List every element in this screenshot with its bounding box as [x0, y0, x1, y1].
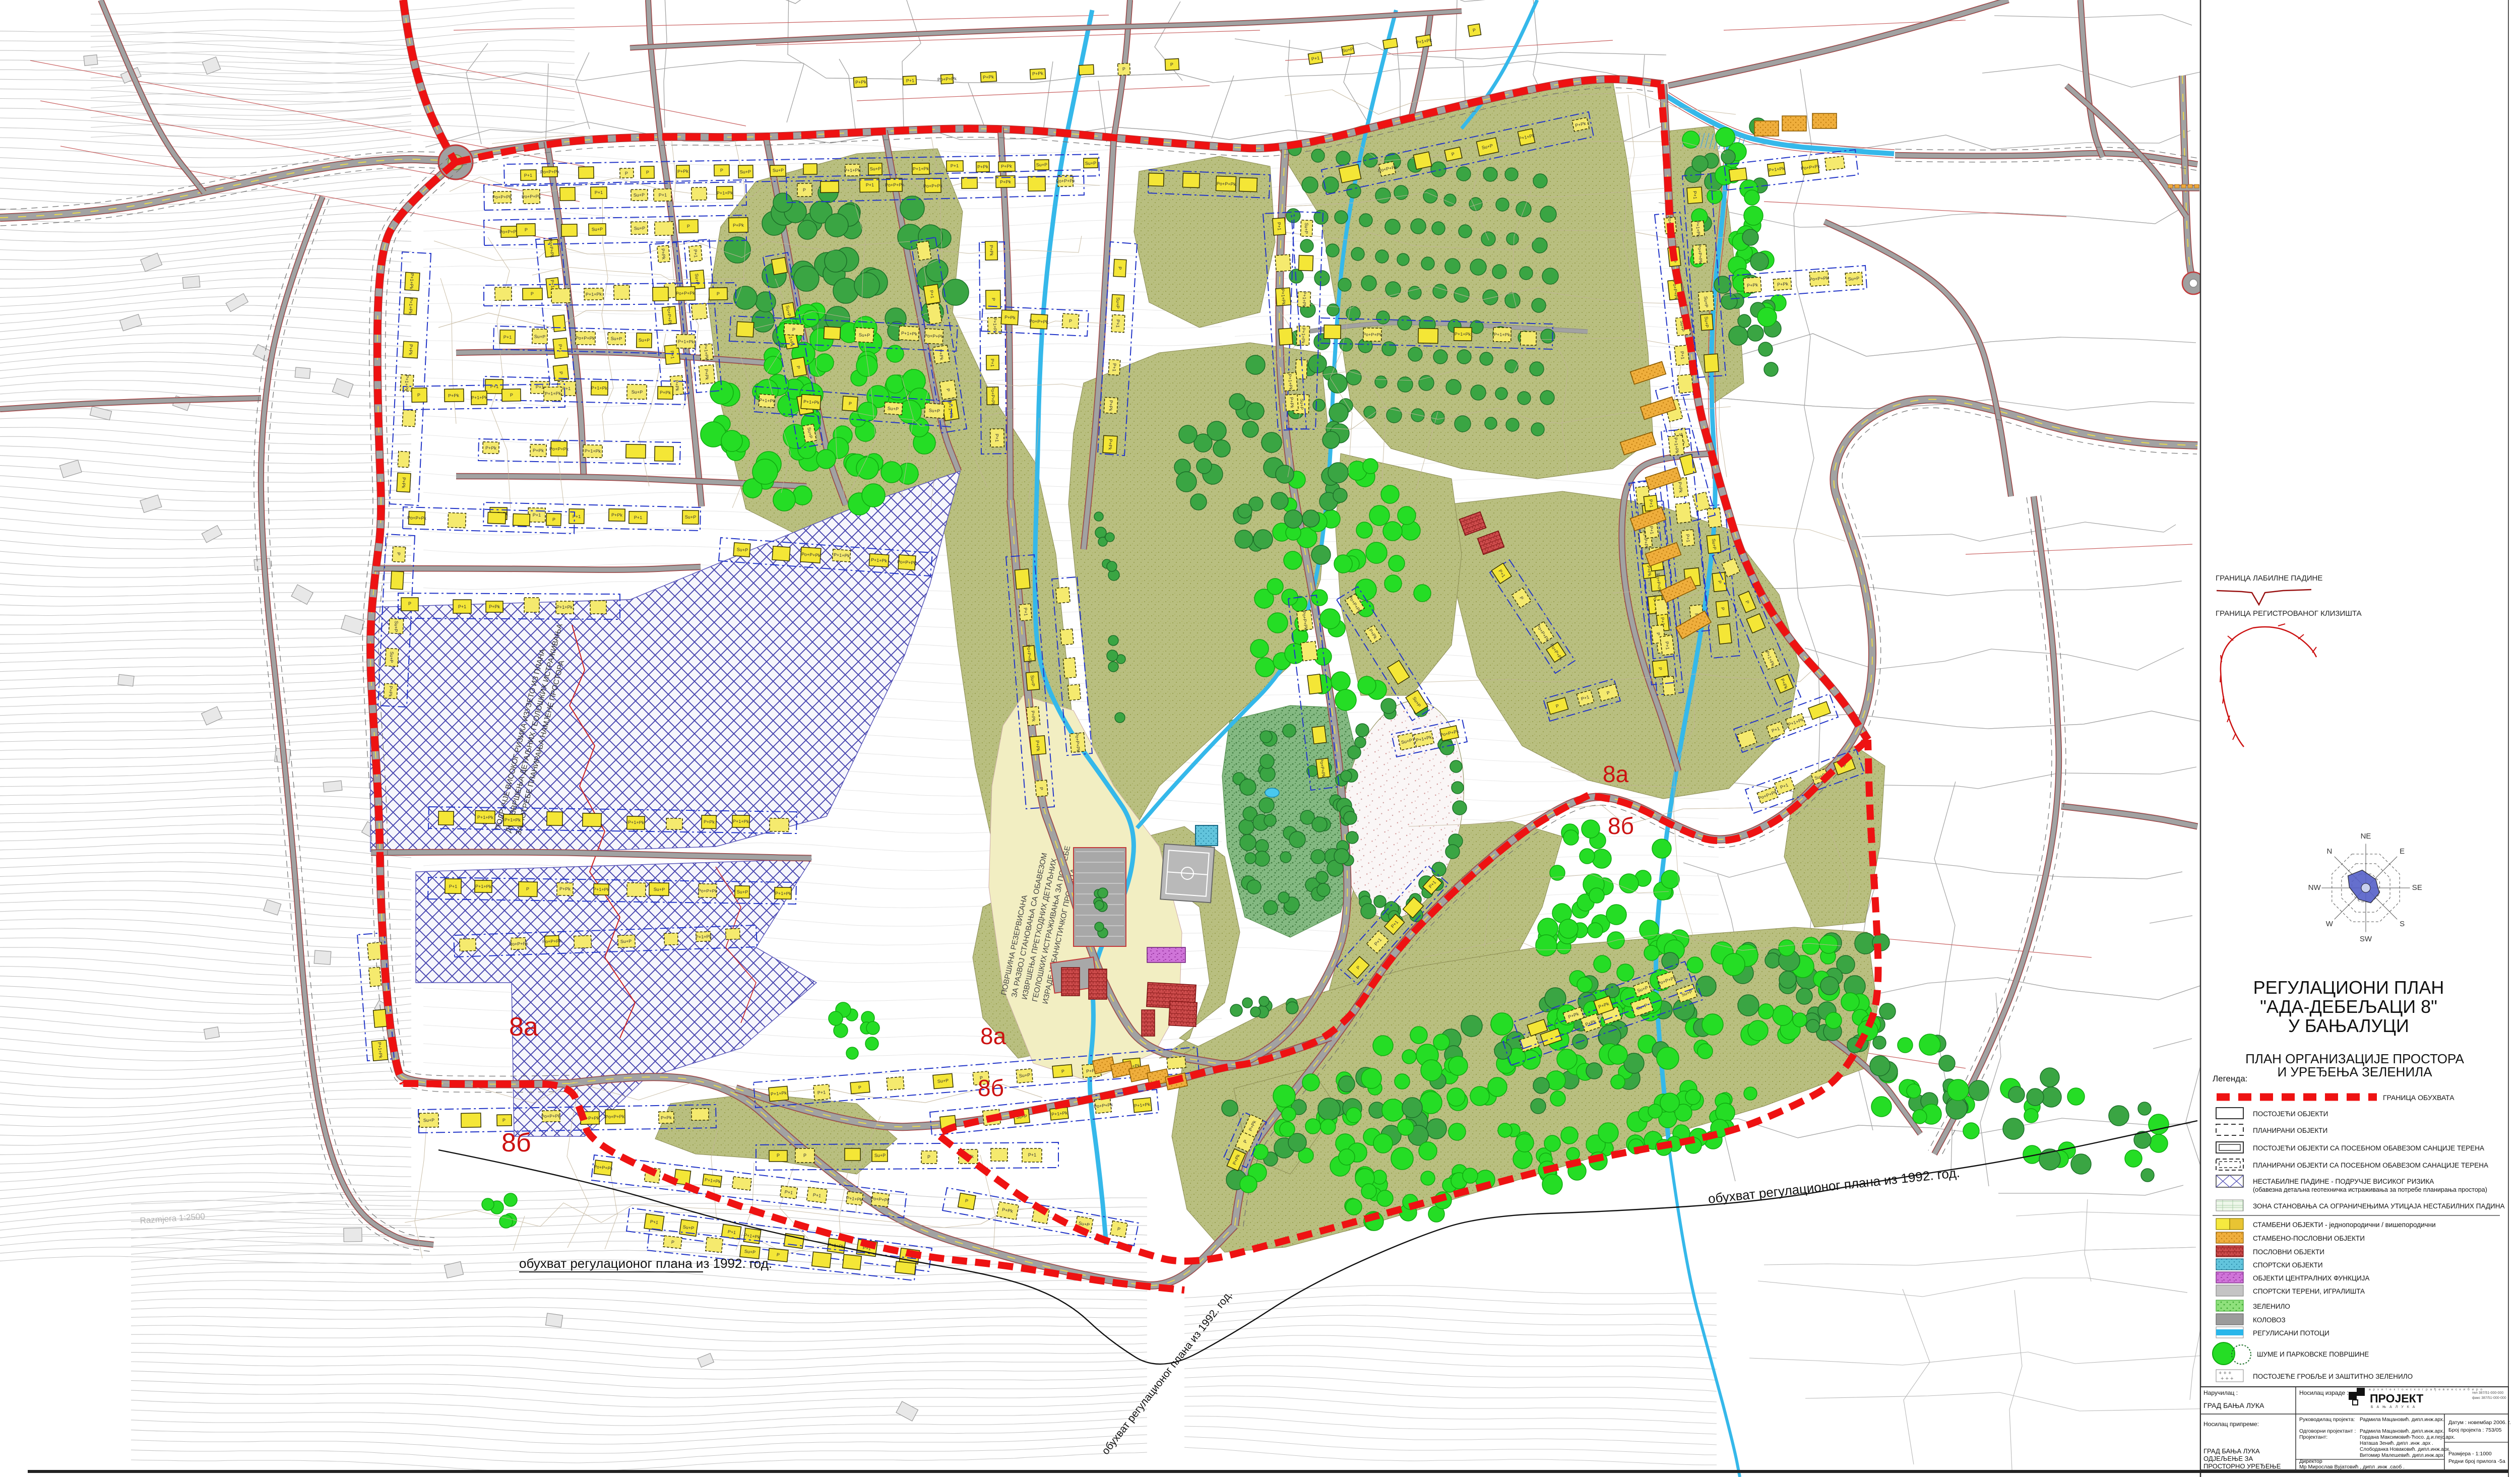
svg-text:Po+P+Pk: Po+P+Pk: [1217, 181, 1236, 186]
svg-text:ОДЈЕЉЕЊЕ ЗА: ОДЈЕЉЕЊЕ ЗА: [2203, 1455, 2253, 1462]
svg-text:P+Pk: P+Pk: [1032, 71, 1044, 76]
svg-text:Su+P: Su+P: [423, 1118, 434, 1123]
svg-text:Пројектант:: Пројектант:: [2299, 1434, 2327, 1440]
svg-text:P+Pk: P+Pk: [559, 886, 571, 891]
svg-text:P+1+Pk: P+1+Pk: [585, 448, 601, 454]
svg-text:P+1+Pk: P+1+Pk: [717, 190, 733, 196]
svg-text:P+1: P+1: [692, 249, 698, 258]
svg-text:8а: 8а: [509, 1012, 538, 1042]
svg-text:Носилац израде :: Носилац израде :: [2299, 1389, 2349, 1396]
svg-text:P+1+Pk: P+1+Pk: [628, 820, 645, 825]
svg-text:НЕСТАБИЛНЕ ПАДИНЕ - ПОДРУЧЈЕ В: НЕСТАБИЛНЕ ПАДИНЕ - ПОДРУЧЈЕ ВИСИКОГ РИЗ…: [2253, 1178, 2434, 1185]
svg-text:P: P: [417, 393, 420, 398]
svg-text:P+1+Pk: P+1+Pk: [1455, 332, 1471, 337]
svg-text:P: P: [1170, 62, 1174, 67]
svg-text:Гордана Максимовић-Ћосо. д.и.п: Гордана Максимовић-Ћосо. д.и.пејс.арх.: [2360, 1435, 2455, 1440]
svg-text:P: P: [646, 170, 649, 175]
svg-text:"АДА-ДЕБЕЉАЦИ 8": "АДА-ДЕБЕЉАЦИ 8": [2260, 996, 2437, 1017]
svg-text:ШУМЕ И ПАРКОВСКЕ ПОВРШИНЕ: ШУМЕ И ПАРКОВСКЕ ПОВРШИНЕ: [2257, 1351, 2369, 1358]
svg-text:NE: NE: [2361, 832, 2371, 841]
svg-text:Su+P: Su+P: [937, 1078, 949, 1084]
svg-text:Su+P: Su+P: [1019, 1072, 1030, 1078]
svg-text:Мр Мирослав Вујатовић , дипл: Мр Мирослав Вујатовић , дипл .инж .саоб …: [2299, 1464, 2405, 1470]
svg-text:ПОСТОЈЕЋЕ ГРОБЉЕ И ЗАШТИТНО ЗЕ: ПОСТОЈЕЋЕ ГРОБЉЕ И ЗАШТИТНО ЗЕЛЕНИЛО: [2253, 1373, 2413, 1380]
svg-text:P+1: P+1: [634, 515, 642, 520]
svg-text:SE: SE: [2412, 883, 2422, 892]
svg-text:а р х и т е к т о н с к о г р: а р х и т е к т о н с к о г р а ђ е в и …: [2369, 1387, 2483, 1391]
svg-text:P+Pk: P+Pk: [677, 169, 688, 174]
svg-text:Su+P: Su+P: [389, 652, 394, 663]
svg-text:обухват регулационог плана из: обухват регулационог плана из 1992. год.: [519, 1256, 772, 1271]
svg-text:ГРАД БАЊА ЛУКА: ГРАД БАЊА ЛУКА: [2203, 1447, 2260, 1455]
svg-text:P+Pk: P+Pk: [1289, 397, 1295, 409]
svg-text:P+Pk: P+Pk: [401, 477, 406, 489]
svg-text:Su+P: Su+P: [740, 169, 751, 174]
svg-text:P+1+Pk: P+1+Pk: [593, 887, 610, 892]
svg-text:P+Pk: P+Pk: [1000, 179, 1011, 184]
svg-text:P+1: P+1: [524, 173, 532, 178]
svg-text:P: P: [717, 291, 720, 296]
svg-text:E: E: [2400, 847, 2405, 856]
svg-text:P: P: [927, 1154, 930, 1160]
svg-text:P+Pk: P+Pk: [1108, 400, 1113, 412]
svg-text:Po+P+Pk: Po+P+Pk: [540, 169, 560, 175]
svg-text:P+1+Pk: P+1+Pk: [591, 386, 608, 391]
svg-text:P+1: P+1: [990, 359, 995, 367]
svg-text:P+Pk: P+Pk: [388, 686, 393, 697]
svg-text:P+Pk: P+Pk: [660, 248, 666, 260]
svg-text:СТАМБЕНО-ПОСЛОВНИ ОБЈЕКТИ: СТАМБЕНО-ПОСЛОВНИ ОБЈЕКТИ: [2253, 1235, 2365, 1242]
svg-text:P: P: [510, 393, 513, 398]
svg-text:P+Pk: P+Pk: [733, 223, 744, 228]
svg-text:РЕГУЛИСАНИ ПОТОЦИ: РЕГУЛИСАНИ ПОТОЦИ: [2253, 1329, 2329, 1337]
svg-text:факс 387/51-000-000: факс 387/51-000-000: [2472, 1396, 2506, 1400]
svg-text:И УРЕЂЕЊА ЗЕЛЕНИЛА: И УРЕЂЕЊА ЗЕЛЕНИЛА: [2277, 1064, 2432, 1079]
svg-text:Носилац припреме:: Носилац припреме:: [2203, 1421, 2259, 1428]
svg-text:P+1: P+1: [812, 1192, 821, 1198]
svg-text:тел 387/51-000-000: тел 387/51-000-000: [2472, 1391, 2503, 1395]
svg-text:P+Pk: P+Pk: [408, 344, 413, 356]
svg-text:P+1: P+1: [458, 604, 466, 609]
svg-text:P: P: [1658, 667, 1663, 670]
svg-text:Su+P: Su+P: [888, 406, 899, 412]
svg-text:P+1: P+1: [503, 335, 512, 340]
svg-text:Su+P: Su+P: [592, 227, 603, 232]
svg-text:Po+P+Pk: Po+P+Pk: [676, 291, 696, 296]
svg-text:P+1: P+1: [659, 192, 667, 198]
svg-text:Su+P: Su+P: [654, 887, 665, 892]
svg-text:ЗОНА СТАНОВАЊА СА ОГРАНИЧЕЊИМ: ЗОНА СТАНОВАЊА СА ОГРАНИЧЕЊИМА УТИЦАЈА Н…: [2253, 1202, 2505, 1210]
svg-text:S: S: [2400, 920, 2405, 928]
svg-text:P+Pk: P+Pk: [661, 1115, 672, 1120]
svg-text:Su+P: Su+P: [870, 166, 881, 171]
svg-text:Su+P: Su+P: [685, 515, 696, 520]
svg-text:ПОСТОЈЕЋИ ОБЈЕКТИ СА ПОСЕБНОМ: ПОСТОЈЕЋИ ОБЈЕКТИ СА ПОСЕБНОМ ОБАВЕЗОМ С…: [2253, 1144, 2484, 1152]
svg-text:P+1+Pk: P+1+Pk: [475, 884, 492, 889]
svg-text:P+1+Pk: P+1+Pk: [586, 292, 602, 297]
svg-text:Su+P: Su+P: [611, 336, 622, 341]
svg-text:P+1+Pk: P+1+Pk: [404, 375, 410, 392]
svg-text:Su+P: Su+P: [1704, 316, 1710, 328]
svg-text:Po+P+Pk: Po+P+Pk: [522, 194, 541, 200]
svg-text:P+1: P+1: [1648, 499, 1654, 507]
svg-text:Su+P: Su+P: [1030, 675, 1036, 686]
svg-text:P+1: P+1: [573, 514, 581, 519]
svg-text:8а: 8а: [980, 1023, 1006, 1049]
svg-text:P+1+Pk: P+1+Pk: [775, 891, 792, 896]
svg-text:P: P: [687, 224, 690, 229]
svg-text:Su+P: Su+P: [874, 1153, 886, 1158]
svg-text:P: P: [526, 886, 529, 891]
svg-text:P: P: [531, 291, 534, 296]
svg-text:P: P: [502, 1118, 506, 1123]
svg-text:ГРАД БАЊА ЛУКА: ГРАД БАЊА ЛУКА: [2203, 1401, 2264, 1409]
svg-text:Легенда:: Легенда:: [2213, 1074, 2247, 1083]
svg-text:P+Pk: P+Pk: [855, 79, 867, 85]
svg-text:P+Pk: P+Pk: [533, 448, 544, 453]
svg-text:P+Pk: P+Pk: [1747, 282, 1758, 288]
svg-text:Su+P: Su+P: [737, 547, 748, 553]
svg-text:Витомир Малешевић. дипл.инж.ар: Витомир Малешевић. дипл.инж.арх.: [2360, 1453, 2445, 1458]
svg-text:Наташа Зенић. дипл .инж .арх: Наташа Зенић. дипл .инж .арх .: [2360, 1441, 2433, 1446]
svg-text:Радмила Мацановић. дипл.инж.а: Радмила Мацановић. дипл.инж.арх.: [2360, 1429, 2444, 1434]
svg-text:P: P: [777, 1153, 780, 1158]
svg-text:P: P: [1122, 67, 1126, 72]
svg-text:P+1: P+1: [669, 350, 675, 359]
svg-text:P+1+Pk: P+1+Pk: [913, 166, 929, 172]
svg-text:P+1+Pk: P+1+Pk: [505, 817, 521, 823]
svg-text:N: N: [2326, 847, 2332, 856]
svg-text:P: P: [991, 298, 996, 301]
svg-text:Po+P+Pk: Po+P+Pk: [937, 76, 957, 82]
svg-text:Su+P: Su+P: [1703, 296, 1709, 308]
svg-text:P+Pk: P+Pk: [1777, 281, 1789, 287]
svg-text:СПОРТСКИ ТЕРЕНИ, ИГРАЛИШТА: СПОРТСКИ ТЕРЕНИ, ИГРАЛИШТА: [2253, 1288, 2365, 1295]
svg-text:Po+P+Pk: Po+P+Pk: [549, 446, 569, 452]
svg-text:Датум : новембар 2006. г.: Датум : новембар 2006. г.: [2448, 1420, 2511, 1426]
svg-text:Po+P+Pk: Po+P+Pk: [541, 1114, 561, 1119]
svg-text:Po+P+Pk: Po+P+Pk: [605, 1114, 625, 1120]
svg-text:P+1: P+1: [951, 163, 959, 168]
svg-text:P: P: [396, 552, 401, 556]
svg-text:P+1: P+1: [1649, 526, 1655, 534]
svg-text:P+Pk: P+Pk: [1107, 439, 1113, 451]
svg-text:P+1: P+1: [1664, 641, 1670, 650]
svg-text:P+1+Pk: P+1+Pk: [471, 395, 488, 401]
svg-text:Po+P+Pk: Po+P+Pk: [885, 182, 905, 188]
svg-text:Su+P: Su+P: [639, 338, 650, 343]
svg-text:P+1+Pk: P+1+Pk: [477, 815, 494, 820]
svg-text:Одговорни пројектант :: Одговорни пројектант :: [2299, 1428, 2356, 1434]
svg-text:Број пројекта : 753/05: Број пројекта : 753/05: [2448, 1427, 2502, 1433]
svg-text:P+1+Pk: P+1+Pk: [409, 273, 415, 290]
svg-text:ПОСТОЈЕЋИ ОБЈЕКТИ: ПОСТОЈЕЋИ ОБЈЕКТИ: [2253, 1110, 2328, 1118]
svg-text:P+1: P+1: [1679, 351, 1685, 359]
svg-text:Su+P: Su+P: [620, 939, 632, 944]
svg-text:P+1: P+1: [1276, 222, 1282, 231]
svg-text:P: P: [1720, 607, 1726, 610]
svg-text:Su+P: Su+P: [1848, 276, 1860, 282]
svg-text:W: W: [2326, 920, 2334, 928]
svg-text:P+1: P+1: [1112, 363, 1117, 372]
svg-text:P: P: [776, 1252, 780, 1258]
svg-text:P+1+Pk: P+1+Pk: [844, 168, 861, 173]
svg-text:Слободанка Новаковић. дипл.инж: Слободанка Новаковић. дипл.инж.арх.: [2360, 1446, 2450, 1452]
svg-text:ГРАНИЦА ЛАБИЛНЕ ПАДИНЕ: ГРАНИЦА ЛАБИЛНЕ ПАДИНЕ: [2216, 574, 2322, 583]
svg-text:P+1+Pk: P+1+Pk: [901, 331, 918, 337]
svg-text:Руководилац пројекта:: Руководилац пројекта:: [2299, 1417, 2355, 1423]
svg-text:У БАЊАЛУЦИ: У БАЊАЛУЦИ: [2288, 1015, 2409, 1036]
svg-text:ПРОЈЕКТ: ПРОЈЕКТ: [2370, 1392, 2423, 1405]
svg-text:P+1: P+1: [866, 182, 874, 187]
svg-text:P+1+Pk: P+1+Pk: [1300, 328, 1306, 344]
svg-text:P: P: [525, 227, 528, 232]
svg-text:P+Pk: P+Pk: [611, 512, 622, 518]
svg-text:8б: 8б: [978, 1075, 1004, 1101]
svg-text:8а: 8а: [1603, 761, 1629, 787]
svg-text:Su+P: Su+P: [737, 889, 748, 894]
svg-text:P: P: [792, 327, 796, 332]
svg-text:СПОРТСКИ ОБЈЕКТИ: СПОРТСКИ ОБЈЕКТИ: [2253, 1261, 2323, 1269]
svg-text:P: P: [803, 187, 806, 192]
svg-text:Su+P: Su+P: [393, 621, 399, 632]
svg-text:P: P: [625, 171, 628, 176]
svg-text:Su+P: Su+P: [1085, 161, 1096, 166]
svg-text:Po+P+Pk: Po+P+Pk: [407, 515, 427, 521]
svg-text:P+1: P+1: [817, 1089, 826, 1095]
svg-text:P+1: P+1: [994, 434, 999, 442]
svg-text:Su+P: Su+P: [1304, 223, 1309, 234]
svg-text:P+1+Pk: P+1+Pk: [408, 298, 414, 314]
svg-text:P+1: P+1: [562, 386, 571, 391]
svg-text:P+1+Pk: P+1+Pk: [696, 934, 712, 939]
svg-text:Su+P: Su+P: [634, 192, 645, 198]
svg-text:Po+P+Pk: Po+P+Pk: [924, 333, 944, 339]
svg-text:P+1: P+1: [1685, 534, 1691, 542]
svg-text:Po+P+Pk: Po+P+Pk: [698, 888, 718, 894]
svg-text:РЕГУЛАЦИОНИ ПЛАН: РЕГУЛАЦИОНИ ПЛАН: [2253, 977, 2444, 998]
svg-text:P: P: [1117, 267, 1122, 270]
svg-text:ПЛАНИРАНИ ОБЈЕКТИ СА ПОСЕБНОМ: ПЛАНИРАНИ ОБЈЕКТИ СА ПОСЕБНОМ ОБАВЕЗОМ С…: [2253, 1162, 2488, 1169]
svg-text:P+1: P+1: [906, 78, 915, 84]
svg-text:P+1: P+1: [784, 1189, 793, 1195]
svg-text:P+Pk: P+Pk: [1001, 164, 1012, 169]
svg-text:P: P: [671, 1240, 674, 1245]
svg-text:ПЛАНИРАНИ ОБЈЕКТИ: ПЛАНИРАНИ ОБЈЕКТИ: [2253, 1127, 2327, 1134]
svg-text:P+1: P+1: [595, 190, 603, 195]
svg-text:Б А Њ А Л У К А: Б А Њ А Л У К А: [2371, 1405, 2416, 1409]
svg-text:Размјера - 1:1000: Размјера - 1:1000: [2448, 1451, 2492, 1457]
svg-text:Su+P: Su+P: [634, 226, 645, 231]
svg-text:ПРОСТОРНО УРЕЂЕЊЕ: ПРОСТОРНО УРЕЂЕЊЕ: [2203, 1462, 2281, 1470]
svg-text:SW: SW: [2360, 935, 2372, 943]
svg-text:ГРАНИЦА ОБУХВАТА: ГРАНИЦА ОБУХВАТА: [2383, 1094, 2454, 1102]
svg-text:P+1+Pk: P+1+Pk: [1494, 332, 1510, 338]
svg-text:Наручилац :: Наручилац :: [2203, 1389, 2238, 1396]
svg-text:P+1+Pk: P+1+Pk: [556, 605, 573, 610]
svg-text:КОЛОВОЗ: КОЛОВОЗ: [2253, 1316, 2286, 1324]
svg-text:P+1: P+1: [1028, 1152, 1036, 1158]
svg-text:P: P: [552, 517, 555, 522]
svg-text:P: P: [408, 601, 411, 606]
svg-text:P: P: [1061, 1069, 1065, 1074]
svg-text:P: P: [1717, 580, 1723, 584]
svg-text:P+1: P+1: [533, 512, 541, 518]
svg-text:ОБЈЕКТИ ЦЕНТРАЛНИХ ФУНКЦИЈА: ОБЈЕКТИ ЦЕНТРАЛНИХ ФУНКЦИЈА: [2253, 1274, 2369, 1282]
svg-text:P+Pk: P+Pk: [989, 245, 994, 256]
svg-text:P+Pk: P+Pk: [448, 393, 459, 398]
svg-text:P+Pk: P+Pk: [704, 819, 715, 824]
svg-text:P+1: P+1: [1023, 607, 1028, 616]
svg-text:P: P: [1039, 787, 1044, 791]
svg-text:8б: 8б: [1608, 813, 1634, 839]
svg-text:P+1: P+1: [1692, 191, 1697, 200]
svg-text:Su+P: Su+P: [1299, 399, 1305, 410]
svg-text:(обавезна детаљна геотехничка: (обавезна детаљна геотехничка истраживањ…: [2253, 1186, 2487, 1193]
svg-text:P: P: [858, 1085, 862, 1090]
svg-text:Po+P+Pk: Po+P+Pk: [923, 183, 943, 189]
svg-text:Po+P+Pk: Po+P+Pk: [542, 938, 562, 944]
svg-text:Po+P+Pk: Po+P+Pk: [492, 195, 512, 200]
svg-text:P+Pk: P+Pk: [1035, 740, 1041, 752]
svg-text:Радмила Мацановић. дипл.инж.а: Радмила Мацановић. дипл.инж.арх.: [2360, 1417, 2444, 1423]
svg-text:Po+P+Pk: Po+P+Pk: [1056, 178, 1076, 184]
svg-text:ЗЕЛЕНИЛО: ЗЕЛЕНИЛО: [2253, 1303, 2290, 1310]
svg-text:Su+P: Su+P: [534, 334, 545, 339]
svg-text:ПОСЛОВНИ ОБЈЕКТИ: ПОСЛОВНИ ОБЈЕКТИ: [2253, 1248, 2324, 1256]
svg-text:P: P: [1069, 318, 1073, 324]
svg-text:P+1: P+1: [1115, 319, 1121, 328]
svg-text:P+Pk: P+Pk: [704, 369, 710, 380]
svg-text:P+1: P+1: [536, 384, 544, 390]
svg-text:P: P: [558, 371, 564, 374]
svg-text:Редни број прилога -5а: Редни број прилога -5а: [2448, 1458, 2505, 1464]
svg-text:P+Pk: P+Pk: [485, 445, 496, 451]
svg-text:Po+P+Pk: Po+P+Pk: [499, 229, 519, 235]
svg-text:8б: 8б: [501, 1128, 531, 1158]
svg-text:Po+P+Pk: Po+P+Pk: [990, 387, 996, 406]
svg-text:P+Pk: P+Pk: [489, 604, 500, 609]
svg-text:Su+P: Su+P: [632, 390, 643, 395]
svg-text:Su+P: Su+P: [929, 408, 940, 414]
svg-text:Su+P: Su+P: [1115, 297, 1120, 309]
svg-text:P+Pk: P+Pk: [977, 164, 988, 169]
svg-text:Po+P+Pk: Po+P+Pk: [1363, 332, 1382, 338]
svg-text:P: P: [720, 168, 723, 173]
svg-text:Po+P+Pk: Po+P+Pk: [1029, 318, 1049, 325]
svg-text:СТАМБЕНИ ОБЈЕКТИ - једнопород: СТАМБЕНИ ОБЈЕКТИ - једнопородични / више…: [2253, 1221, 2436, 1229]
svg-text:NW: NW: [2308, 883, 2321, 892]
svg-text:P+1+Pk: P+1+Pk: [545, 391, 561, 397]
svg-text:P+Pk: P+Pk: [983, 74, 994, 80]
svg-text:P: P: [849, 401, 852, 406]
svg-text:P+1+Pk: P+1+Pk: [678, 339, 695, 345]
svg-text:Su+P: Su+P: [1036, 162, 1047, 167]
svg-text:P+Pk: P+Pk: [1030, 711, 1036, 722]
svg-text:P+1: P+1: [1660, 617, 1666, 625]
svg-text:P+1: P+1: [449, 884, 457, 889]
svg-text:+ + +: + + +: [2221, 1376, 2233, 1382]
svg-text:P+1+Pk: P+1+Pk: [1301, 291, 1307, 308]
svg-text:Po+P+Pk: Po+P+Pk: [509, 941, 529, 946]
svg-text:P: P: [803, 1153, 806, 1158]
svg-text:Su+P: Su+P: [859, 332, 870, 338]
svg-text:P+1+Pk: P+1+Pk: [733, 819, 749, 824]
svg-text:Po+P+Pk: Po+P+Pk: [576, 336, 595, 341]
svg-text:P+Pk: P+Pk: [660, 390, 671, 395]
svg-text:Su+P: Su+P: [773, 168, 784, 173]
svg-text:P+Pk: P+Pk: [1004, 314, 1016, 320]
svg-text:P: P: [1656, 632, 1661, 635]
svg-text:ГРАНИЦА РЕГИСТРОВАНОГ КЛИЗИШТА: ГРАНИЦА РЕГИСТРОВАНОГ КЛИЗИШТА: [2216, 609, 2362, 618]
